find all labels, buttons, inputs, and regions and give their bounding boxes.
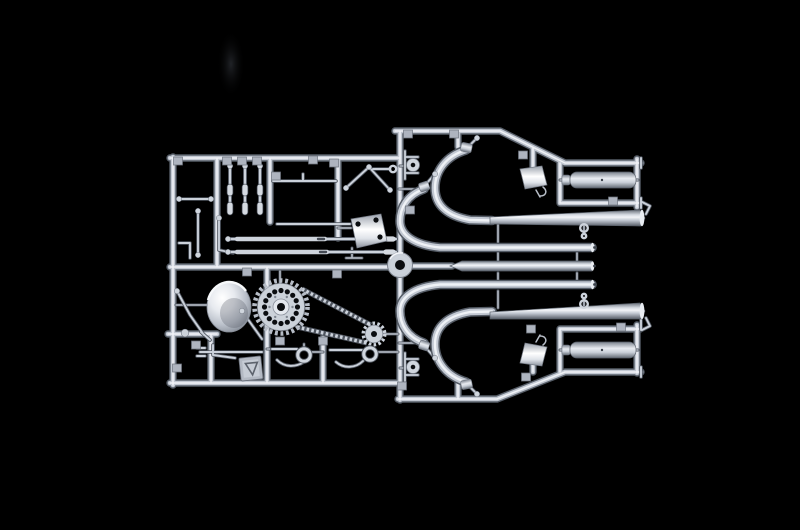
mount-box-top — [520, 166, 547, 189]
fitting — [460, 142, 473, 153]
sprue-photo-canvas: Silver injection-moulded model kit sprue… — [0, 0, 800, 530]
number-plate — [239, 356, 263, 381]
photo-of-model-kit-sprue: Silver injection-moulded model kit sprue… — [0, 0, 800, 530]
silencer-cap-top — [562, 175, 570, 185]
mount-box-bottom — [520, 343, 547, 366]
faint-reflection-smudge — [217, 30, 245, 98]
sprocket-axle-hole — [277, 303, 285, 311]
rail-knob — [181, 329, 189, 337]
steering-hub — [388, 253, 413, 278]
rear-sprocket-hole — [371, 331, 377, 337]
fitting — [460, 379, 473, 390]
center-muffler-pipe — [450, 261, 592, 271]
silencer-cap-bottom — [562, 345, 570, 355]
headlamp-shell — [207, 282, 251, 332]
